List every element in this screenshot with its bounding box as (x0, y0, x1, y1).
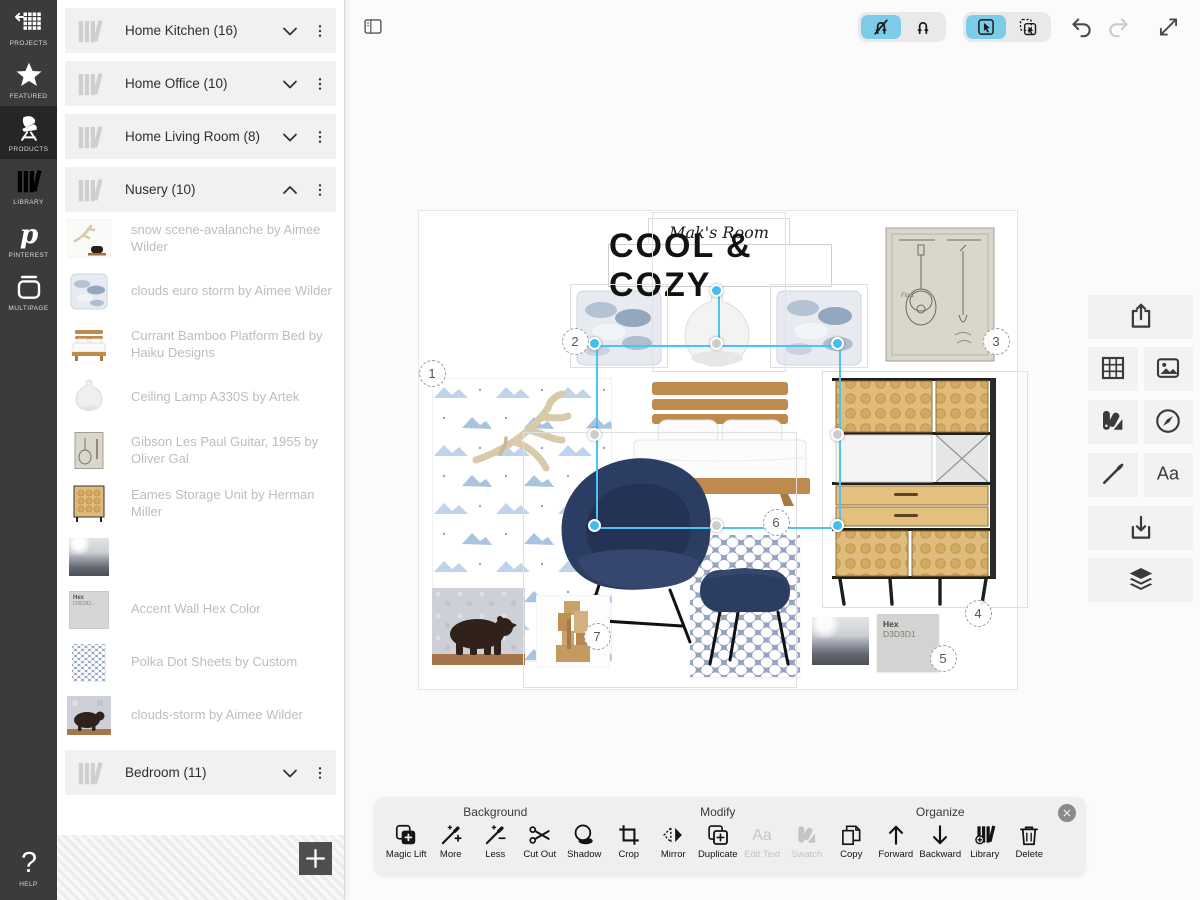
right-toolbar-row (1088, 400, 1193, 444)
svg-text:?: ? (21, 848, 37, 878)
chevron-up-icon[interactable] (278, 178, 302, 202)
item-marker-4: 4 (965, 600, 992, 627)
button-label: Crop (618, 849, 639, 860)
product-row[interactable]: Gibson Les Paul Guitar, 1955 by Oliver G… (57, 424, 344, 477)
product-thumbnail (67, 484, 111, 523)
sidebar-item-pinterest[interactable]: p PINTEREST (0, 212, 57, 265)
product-label: Accent Wall Hex Color (131, 601, 261, 618)
redo-button (1105, 14, 1132, 40)
button-label: Duplicate (698, 849, 738, 860)
selection-handle-bottom-right[interactable] (831, 519, 844, 532)
toolbar-group-label: Modify (607, 805, 830, 819)
templates-button[interactable] (1088, 347, 1138, 391)
folder-label: Bedroom (11) (125, 765, 278, 780)
select-cursor-icon (975, 25, 997, 40)
magnet-icon (912, 25, 934, 40)
product-row[interactable]: clouds euro storm by Aimee Wilder (57, 265, 344, 318)
sidebar-item-label: FEATURED (10, 93, 48, 100)
expand-icon (1155, 28, 1182, 43)
hex-swatch-label: Hex (883, 619, 939, 629)
shadow-button[interactable]: Shadow (562, 822, 607, 860)
hex-swatch-value: D3D3D1 (883, 629, 939, 639)
chair-icon (14, 113, 44, 143)
button-label: Magic Lift (386, 849, 427, 860)
toolbar-group-organize: Organize Copy Forward Backward Library D… (829, 805, 1052, 860)
edit-text-icon: Aa (749, 822, 775, 848)
text-icon: Aa (1153, 459, 1183, 492)
text-button[interactable]: Aa (1144, 453, 1194, 497)
magnet-off-icon (870, 25, 892, 40)
selection-handle-right-mid[interactable] (831, 428, 844, 441)
folder-row[interactable]: Bedroom (11) (65, 750, 336, 795)
button-label: Less (485, 849, 505, 860)
product-label: Eames Storage Unit by Herman Miller (131, 487, 338, 521)
magic-lift-icon (393, 822, 419, 848)
duplicate-button[interactable]: Duplicate (696, 822, 741, 860)
duplicate-icon (705, 822, 731, 848)
sidebar-item-label: HELP (19, 881, 38, 888)
bottom-toolbar: Background Magic Lift More Less Cut Out … (374, 797, 1086, 876)
sidebar-item-library[interactable]: LIBRARY (0, 159, 57, 212)
image-icon (1153, 353, 1183, 386)
multi-select-icon (1017, 25, 1039, 40)
delete-button[interactable]: Delete (1007, 822, 1052, 860)
swatch-icon (794, 822, 820, 848)
kebab-menu-icon[interactable] (312, 178, 328, 202)
books-icon (14, 166, 44, 196)
board-item-landscape-photo[interactable] (812, 617, 869, 665)
product-row[interactable]: Currant Bamboo Platform Bed by Haiku Des… (57, 318, 344, 371)
folder-list-bottom: Bedroom (11) (57, 750, 344, 795)
single-select-button[interactable] (966, 15, 1006, 39)
snap-toggle (858, 12, 946, 42)
selection-handle-bottom-mid[interactable] (710, 519, 723, 532)
product-thumbnail (67, 272, 111, 311)
forward-button[interactable]: Forward (874, 822, 919, 860)
selection-handle-top-right[interactable] (831, 337, 844, 350)
svg-text:Fig.1: Fig.1 (901, 293, 914, 299)
grid-template-icon (1098, 353, 1128, 386)
multi-select-button[interactable] (1008, 15, 1048, 39)
folder-row[interactable]: Home Living Room (8) (65, 114, 336, 159)
board-title-text[interactable]: COOL & COZY (608, 244, 832, 287)
button-label: Delete (1016, 849, 1043, 860)
item-marker-7: 7 (584, 623, 611, 650)
sidebar-item-label: MULTIPAGE (8, 305, 48, 312)
chevron-down-icon[interactable] (278, 19, 302, 43)
product-thumbnail (67, 643, 111, 682)
mirror-button[interactable]: Mirror (651, 822, 696, 860)
product-label: clouds euro storm by Aimee Wilder (131, 283, 332, 300)
sidebar-item-label: PRODUCTS (9, 146, 49, 153)
folder-label: Home Office (10) (125, 76, 278, 91)
sidebar-item-products[interactable]: PRODUCTS (0, 106, 57, 159)
close-toolbar-button[interactable] (1058, 804, 1076, 822)
item-marker-3: 3 (983, 328, 1010, 355)
arrow-up-icon (883, 822, 909, 848)
undo-icon (1068, 28, 1095, 43)
board-item-hex-swatch[interactable]: Hex D3D3D1 (877, 614, 939, 672)
product-thumbnail (67, 378, 111, 417)
arrow-down-icon (927, 822, 953, 848)
sidebar-item-featured[interactable]: FEATURED (0, 53, 57, 106)
import-button[interactable] (1088, 506, 1193, 550)
product-row[interactable]: Eames Storage Unit by Herman Miller (57, 477, 344, 530)
snap-off-button[interactable] (861, 15, 901, 39)
item-marker-6: 6 (763, 509, 790, 536)
button-label: Edit Text (744, 849, 780, 860)
folder-label: Home Living Room (8) (125, 129, 278, 144)
button-label: Copy (840, 849, 862, 860)
library-add-icon (972, 822, 998, 848)
right-toolbar-row (1088, 347, 1193, 391)
swatches-icon (1098, 406, 1128, 439)
product-thumbnail (67, 696, 111, 735)
folder-label: Home Kitchen (16) (125, 23, 278, 38)
library-button[interactable]: Library (963, 822, 1008, 860)
kebab-menu-icon[interactable] (312, 72, 328, 96)
import-icon (1126, 512, 1156, 545)
books-icon (73, 758, 107, 788)
pen-icon (1098, 459, 1128, 492)
swatches-button[interactable] (1088, 400, 1138, 444)
folder-list-top: Home Kitchen (16) Home Office (10) Home … (57, 8, 344, 212)
toolbar-group-modify: Modify Crop Mirror DuplicateAa Edit Text… (607, 805, 830, 860)
swatch-button: Swatch (785, 822, 830, 860)
crop-icon (616, 822, 642, 848)
button-label: Cut Out (523, 849, 556, 860)
product-thumbnail (67, 431, 111, 470)
kebab-menu-icon[interactable] (312, 761, 328, 785)
item-marker-2: 2 (562, 328, 589, 355)
product-row[interactable] (57, 530, 344, 583)
toolbar-group-background: Background Magic Lift More Less Cut Out … (384, 805, 607, 860)
folder-label: Nusery (10) (125, 182, 278, 197)
item-marker-5: 5 (930, 645, 957, 672)
board-item-bear-sculpture[interactable] (432, 588, 525, 665)
button-label: Library (970, 849, 999, 860)
star-icon (14, 60, 44, 90)
folder-row[interactable]: Nusery (10) (65, 167, 336, 212)
toolbar-group-label: Organize (829, 805, 1052, 819)
button-label: Mirror (661, 849, 686, 860)
nav-rail: PROJECTS FEATURED PRODUCTS LIBRARYp PINT… (0, 0, 57, 900)
images-button[interactable] (1144, 347, 1194, 391)
wand-plus-icon (438, 822, 464, 848)
sidebar-item-help[interactable]: ? HELP (0, 841, 57, 894)
shadow-icon (571, 822, 597, 848)
books-icon (73, 16, 107, 46)
redo-icon (1105, 28, 1132, 43)
sidebar-item-multipage[interactable]: MULTIPAGE (0, 265, 57, 318)
sidebar-item-label: PROJECTS (10, 40, 48, 47)
kebab-menu-icon[interactable] (312, 19, 328, 43)
sidebar-item-label: PINTEREST (8, 252, 48, 259)
sidebar-toggle-button[interactable] (362, 16, 384, 37)
edit-text-button: Aa Edit Text (740, 822, 785, 860)
product-thumbnail (67, 537, 111, 576)
chevron-down-icon[interactable] (278, 761, 302, 785)
folder-row[interactable]: Home Office (10) (65, 61, 336, 106)
books-icon (73, 69, 107, 99)
multipage-icon (14, 272, 44, 302)
share-icon (1126, 301, 1156, 334)
product-row[interactable]: Ceiling Lamp A330S by Artek (57, 371, 344, 424)
select-mode (963, 12, 1051, 42)
svg-text:Aa: Aa (1157, 463, 1180, 483)
product-row[interactable]: Hex D3D3D... Accent Wall Hex Color (57, 583, 344, 636)
snap-on-button[interactable] (903, 15, 943, 39)
sidebar-item-label: LIBRARY (13, 199, 44, 206)
product-label: Currant Bamboo Platform Bed by Haiku Des… (131, 328, 338, 362)
toolbar-group-label: Background (384, 805, 607, 819)
button-label: Shadow (567, 849, 601, 860)
product-thumbnail: Hex D3D3D... (67, 590, 111, 629)
books-icon (73, 122, 107, 152)
svg-text:Aa: Aa (753, 827, 772, 844)
right-toolbar-row: Aa (1088, 453, 1193, 497)
item-marker-1: 1 (419, 360, 446, 387)
copy-button[interactable]: Copy (829, 822, 874, 860)
add-board-button[interactable] (299, 842, 332, 875)
more-button[interactable]: More (429, 822, 474, 860)
button-label: Swatch (791, 849, 822, 860)
product-row[interactable]: clouds-storm by Aimee Wilder (57, 689, 344, 742)
library-panel: Home Kitchen (16) Home Office (10) Home … (57, 0, 345, 900)
pinterest-icon: p (14, 219, 44, 249)
svg-text:p: p (19, 219, 38, 249)
product-list: snow scene-avalanche by Aimee Wilder clo… (57, 212, 344, 742)
cut-out-button[interactable]: Cut Out (518, 822, 563, 860)
panel-footer (57, 835, 344, 900)
sidebar-item-projects[interactable]: PROJECTS (0, 0, 57, 53)
wand-minus-icon (482, 822, 508, 848)
button-label: More (440, 849, 462, 860)
fullscreen-button[interactable] (1155, 14, 1182, 40)
board-item-guitar-patent-poster[interactable]: Fig.1 (885, 227, 995, 362)
browse-button[interactable] (1144, 400, 1194, 444)
canvas-area: Fig.1 (345, 0, 1200, 900)
board-item-eames-storage-unit[interactable] (828, 376, 1000, 608)
product-label: Polka Dot Sheets by Custom (131, 654, 297, 671)
copy-icon (838, 822, 864, 848)
product-label: Ceiling Lamp A330S by Artek (131, 389, 299, 406)
product-thumbnail (67, 219, 111, 258)
selection-handle-top-left[interactable] (588, 337, 601, 350)
mirror-icon (660, 822, 686, 848)
product-label: Gibson Les Paul Guitar, 1955 by Oliver G… (131, 434, 338, 468)
product-row[interactable]: snow scene-avalanche by Aimee Wilder (57, 212, 344, 265)
right-toolbar-row (1088, 295, 1193, 339)
layers-button[interactable] (1088, 558, 1193, 602)
undo-button[interactable] (1068, 14, 1095, 40)
selection-handle-left-mid[interactable] (588, 428, 601, 441)
layers-icon (1126, 564, 1156, 597)
question-icon: ? (14, 848, 44, 878)
right-toolbar-row (1088, 506, 1193, 550)
product-row[interactable]: Polka Dot Sheets by Custom (57, 636, 344, 689)
app-window: PROJECTS FEATURED PRODUCTS LIBRARYp PINT… (0, 0, 1200, 900)
crop-button[interactable]: Crop (607, 822, 652, 860)
compass-icon (1153, 406, 1183, 439)
selection-handle-top-mid[interactable] (710, 337, 723, 350)
selection-handle-bottom-left[interactable] (588, 519, 601, 532)
product-label: clouds-storm by Aimee Wilder (131, 707, 303, 724)
chevron-down-icon[interactable] (278, 72, 302, 96)
backward-button[interactable]: Backward (918, 822, 963, 860)
draw-button[interactable] (1088, 453, 1138, 497)
product-label: snow scene-avalanche by Aimee Wilder (131, 222, 338, 256)
product-thumbnail (67, 325, 111, 364)
button-label: Forward (878, 849, 913, 860)
chevron-down-icon[interactable] (278, 125, 302, 149)
button-label: Backward (919, 849, 961, 860)
right-toolbar-row (1088, 558, 1193, 602)
folder-row[interactable]: Home Kitchen (16) (65, 8, 336, 53)
less-button[interactable]: Less (473, 822, 518, 860)
scissors-icon (527, 822, 553, 848)
grid-back-icon (14, 7, 44, 37)
books-icon (73, 175, 107, 205)
magic-lift-button[interactable]: Magic Lift (384, 822, 429, 860)
trash-icon (1016, 822, 1042, 848)
selection-handle-lamp-anchor[interactable] (710, 284, 723, 297)
kebab-menu-icon[interactable] (312, 125, 328, 149)
share-button[interactable] (1088, 295, 1193, 339)
